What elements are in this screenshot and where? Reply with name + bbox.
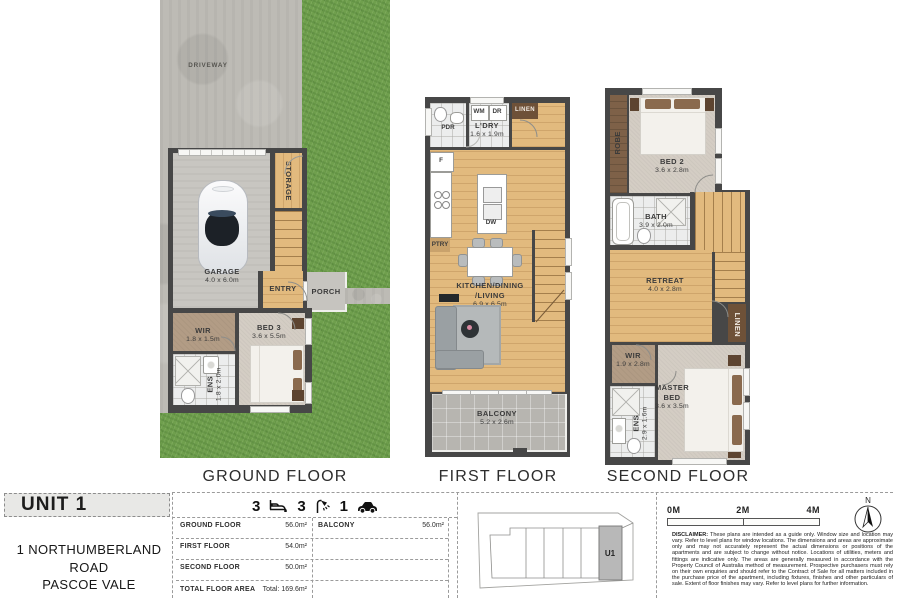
divider-v1 xyxy=(172,492,173,598)
shower-icon xyxy=(315,499,331,514)
bed-icon xyxy=(269,499,288,514)
area-row-second-label: SECOND FLOOR xyxy=(180,564,240,571)
compass-n-label: N xyxy=(865,496,871,505)
site-plan-unit1-label: U1 xyxy=(605,549,616,558)
area-row-ground-value: 56.0m² xyxy=(240,522,307,529)
divider-table-right xyxy=(448,518,449,598)
address-line2: PASCOE VALE xyxy=(0,576,178,594)
beds-count: 3 xyxy=(252,498,260,515)
first-door-arcs xyxy=(420,90,580,460)
scale-2m: 2M xyxy=(731,505,755,515)
area-row-first-value: 54.0m² xyxy=(240,543,307,550)
title-first-floor: FIRST FLOOR xyxy=(398,468,598,486)
title-ground-floor: GROUND FLOOR xyxy=(175,468,375,486)
address: 1 NORTHUMBERLAND ROAD PASCOE VALE xyxy=(0,541,178,594)
divider-v2 xyxy=(457,492,458,598)
divider-v3 xyxy=(656,492,657,598)
baths-count: 3 xyxy=(297,498,305,515)
scale-4m: 4M xyxy=(800,505,820,515)
scale-0m: 0M xyxy=(667,505,681,515)
address-line1: 1 NORTHUMBERLAND ROAD xyxy=(0,541,178,576)
title-second-floor: SECOND FLOOR xyxy=(578,468,778,486)
disclaimer-title: DISCLAIMER: xyxy=(672,532,708,538)
area-balcony-value: 56.0m² xyxy=(370,522,444,529)
site-plan-map: U1 xyxy=(470,505,650,593)
unit-badge: UNIT 1 xyxy=(4,493,170,517)
car-icon xyxy=(357,499,378,514)
area-row-second-value: 50.0m² xyxy=(240,564,307,571)
unit-label: UNIT 1 xyxy=(5,494,87,516)
ground-door-arcs xyxy=(160,0,390,465)
divider-table-mid xyxy=(312,518,313,598)
divider-top xyxy=(172,492,893,493)
second-door-arcs xyxy=(600,85,760,470)
disclaimer: DISCLAIMER: These plans are intended as … xyxy=(672,532,893,587)
scale-bar xyxy=(667,518,820,526)
area-balcony-label: BALCONY xyxy=(318,522,355,529)
floorplan-sheet: DRIVEWAY GARAGE4.0 x 6.0m STORAGE ENTRY … xyxy=(0,0,900,600)
area-total-value: Total: 169.6m² xyxy=(240,586,307,593)
disclaimer-text: These plans are intended as a guide only… xyxy=(672,532,893,587)
compass: N xyxy=(848,494,888,536)
area-row-first-label: FIRST FLOOR xyxy=(180,543,230,550)
divider-stats xyxy=(172,517,457,518)
stats-row: 3 3 1 xyxy=(240,497,390,515)
area-row-ground-label: GROUND FLOOR xyxy=(180,522,241,529)
cars-count: 1 xyxy=(340,498,348,515)
